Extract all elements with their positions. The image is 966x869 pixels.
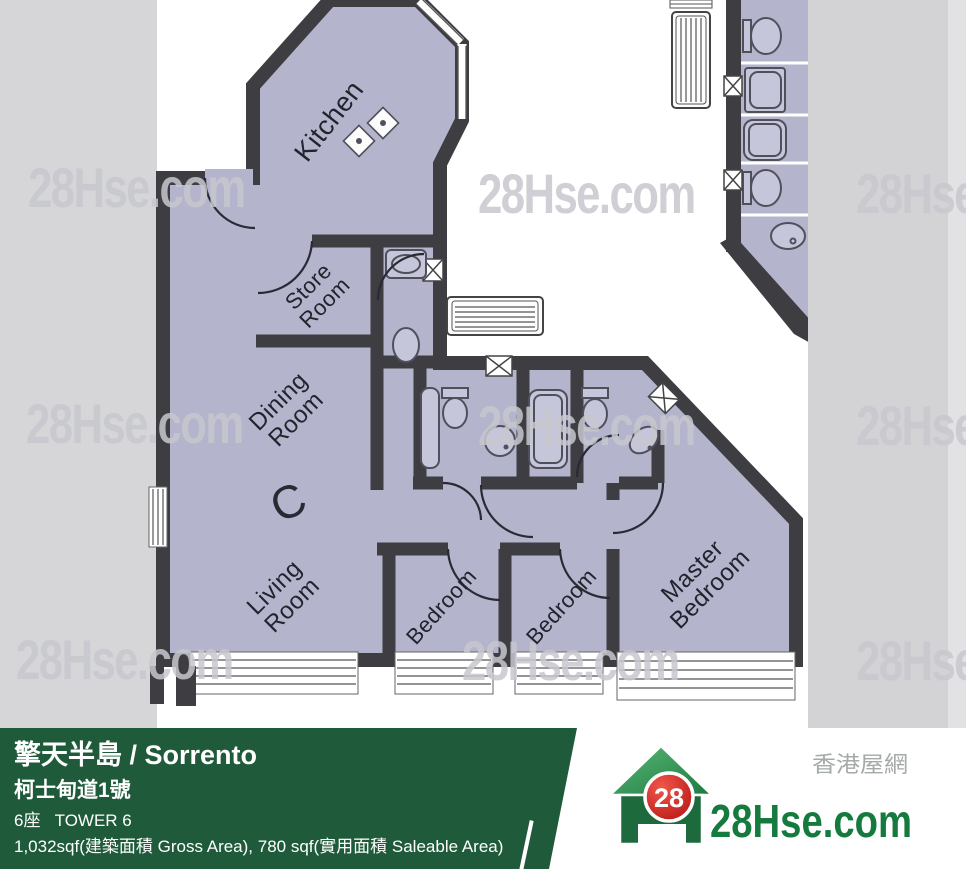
logo-chinese-name: 香港屋網	[812, 752, 908, 777]
watermark: 28Hse.com	[856, 633, 966, 689]
28hse-logo[interactable]: 28 28Hse.com 香港屋網	[598, 740, 966, 866]
badge-number: 28	[654, 783, 684, 813]
logo-site-name: 28Hse.com	[710, 795, 912, 847]
watermark: 28Hse.com	[28, 160, 245, 216]
left-window	[149, 487, 167, 547]
watermark: 28Hse.com	[856, 398, 966, 454]
ac-unit-vertical	[670, 0, 712, 108]
ac-unit-horizontal	[447, 297, 543, 335]
watermark: 28Hse.com	[16, 632, 233, 688]
panel-diagonal-streak	[518, 820, 533, 869]
watermark: 28Hse.com	[26, 396, 243, 452]
right-edge-strip	[948, 0, 966, 730]
watermark: 28Hse.com	[462, 633, 679, 689]
right-gray-margin	[808, 0, 966, 730]
tower-label: 6座 TOWER 6	[14, 806, 132, 831]
watermark: 28Hse.com	[478, 166, 695, 222]
building-name: 擎天半島 / Sorrento	[14, 733, 257, 772]
floorplan-page: 28Hse.com 28Hse.com 28Hse.com 28Hse.com …	[0, 0, 966, 869]
watermark: 28Hse.com	[856, 166, 966, 222]
left-gray-margin	[0, 0, 157, 730]
building-address: 柯士甸道1號	[14, 774, 131, 804]
badge-28-icon: 28	[645, 773, 693, 821]
area-label: 1,032sqf(建築面積 Gross Area), 780 sqf(實用面積 …	[14, 832, 503, 857]
watermark: 28Hse.com	[478, 398, 695, 454]
floorplan-image	[0, 0, 966, 730]
